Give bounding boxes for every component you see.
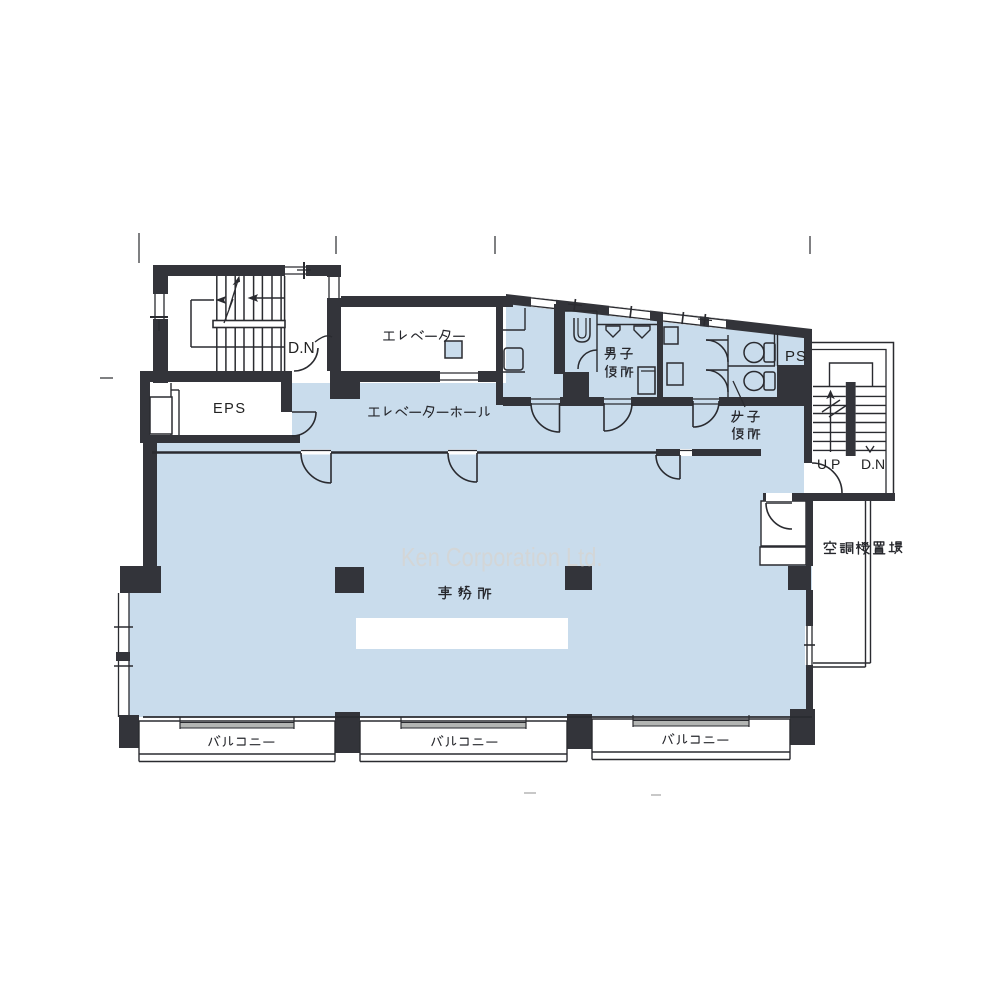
svg-text:Ken Corporation Ltd.: Ken Corporation Ltd. — [401, 543, 602, 572]
svg-text:D.N: D.N — [861, 456, 885, 472]
svg-text:U.P: U.P — [817, 456, 840, 472]
svg-text:D.N: D.N — [288, 340, 315, 357]
svg-text:EPS: EPS — [213, 401, 247, 417]
svg-text:PS: PS — [785, 348, 807, 365]
